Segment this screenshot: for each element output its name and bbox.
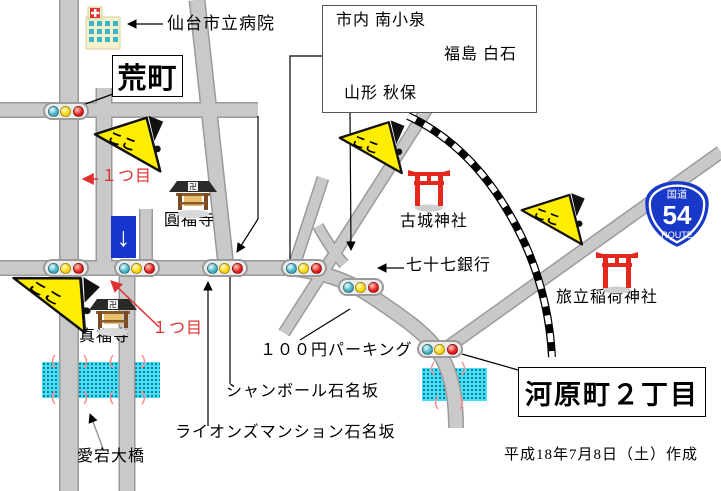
shinpukuji-manji-icon: 卍 xyxy=(109,301,117,310)
bank-label: 七十七銀行 xyxy=(406,257,491,275)
bridge-leader xyxy=(90,414,104,451)
one-way-sign: ↓ xyxy=(111,216,136,258)
kojo-shrine-torii-icon xyxy=(407,166,451,212)
kawaramachi-box: 河原町２丁目 xyxy=(518,367,706,417)
one-way-arrow-icon: ↓ xyxy=(117,222,131,253)
atago-bridge-label: 愛宕大橋 xyxy=(77,448,145,466)
kojo-shrine-label: 古城神社 xyxy=(400,213,468,231)
direction-box-label-city: 市内 南小泉 xyxy=(336,12,426,30)
tabidachi-shrine-torii-icon xyxy=(595,248,639,294)
enpukuji-manji-icon: 卍 xyxy=(189,183,197,192)
road-end-leader xyxy=(237,116,258,252)
traffic-light-kawaramachi xyxy=(417,340,463,358)
here-marker-3: ここ xyxy=(337,118,411,180)
date-created-label: 平成18年7月8日（土）作成 xyxy=(504,447,698,464)
direction-box-label-yamagata: 山形 秋保 xyxy=(344,85,417,103)
enpukuji-temple-icon: 卍 xyxy=(168,176,218,218)
route-map: 市内 南小泉 福島 白石 山形 秋保 仙台市立病院 荒町 河原町２丁目 ↓ ここ xyxy=(0,0,721,491)
hospital-icon xyxy=(82,5,124,51)
aramachi-label: 荒町 xyxy=(117,55,177,97)
traffic-light-bank xyxy=(338,278,384,296)
here-marker-4: ここ xyxy=(519,192,591,250)
parking-label: １００円パーキング xyxy=(260,342,413,360)
traffic-light-3 xyxy=(202,259,248,277)
parking-leader xyxy=(300,309,350,340)
aramachi-box: 荒町 xyxy=(112,55,183,97)
hospital-label: 仙台市立病院 xyxy=(167,14,275,34)
first-signal-bottom-label: １つ目 xyxy=(152,320,203,338)
traffic-light-4 xyxy=(281,259,327,277)
lions-mansion-label: ライオンズマンション石名坂 xyxy=(175,424,396,442)
traffic-light-2 xyxy=(114,259,160,277)
chambord-label: シャンボール石名坂 xyxy=(226,383,379,401)
direction-box-label-fukushima: 福島 白石 xyxy=(444,46,517,64)
kawaramachi-leader xyxy=(462,354,518,370)
here-marker-1: ここ xyxy=(92,114,170,178)
route-badge-number: 54 xyxy=(663,200,692,230)
traffic-light-aramachi xyxy=(43,102,89,120)
route-54-badge: 国道 54 ROUTE xyxy=(641,180,713,248)
kawaramachi-label: 河原町２丁目 xyxy=(525,373,699,412)
route-badge-kanji: 国道 xyxy=(667,188,687,201)
route-badge-word: ROUTE xyxy=(661,230,693,240)
